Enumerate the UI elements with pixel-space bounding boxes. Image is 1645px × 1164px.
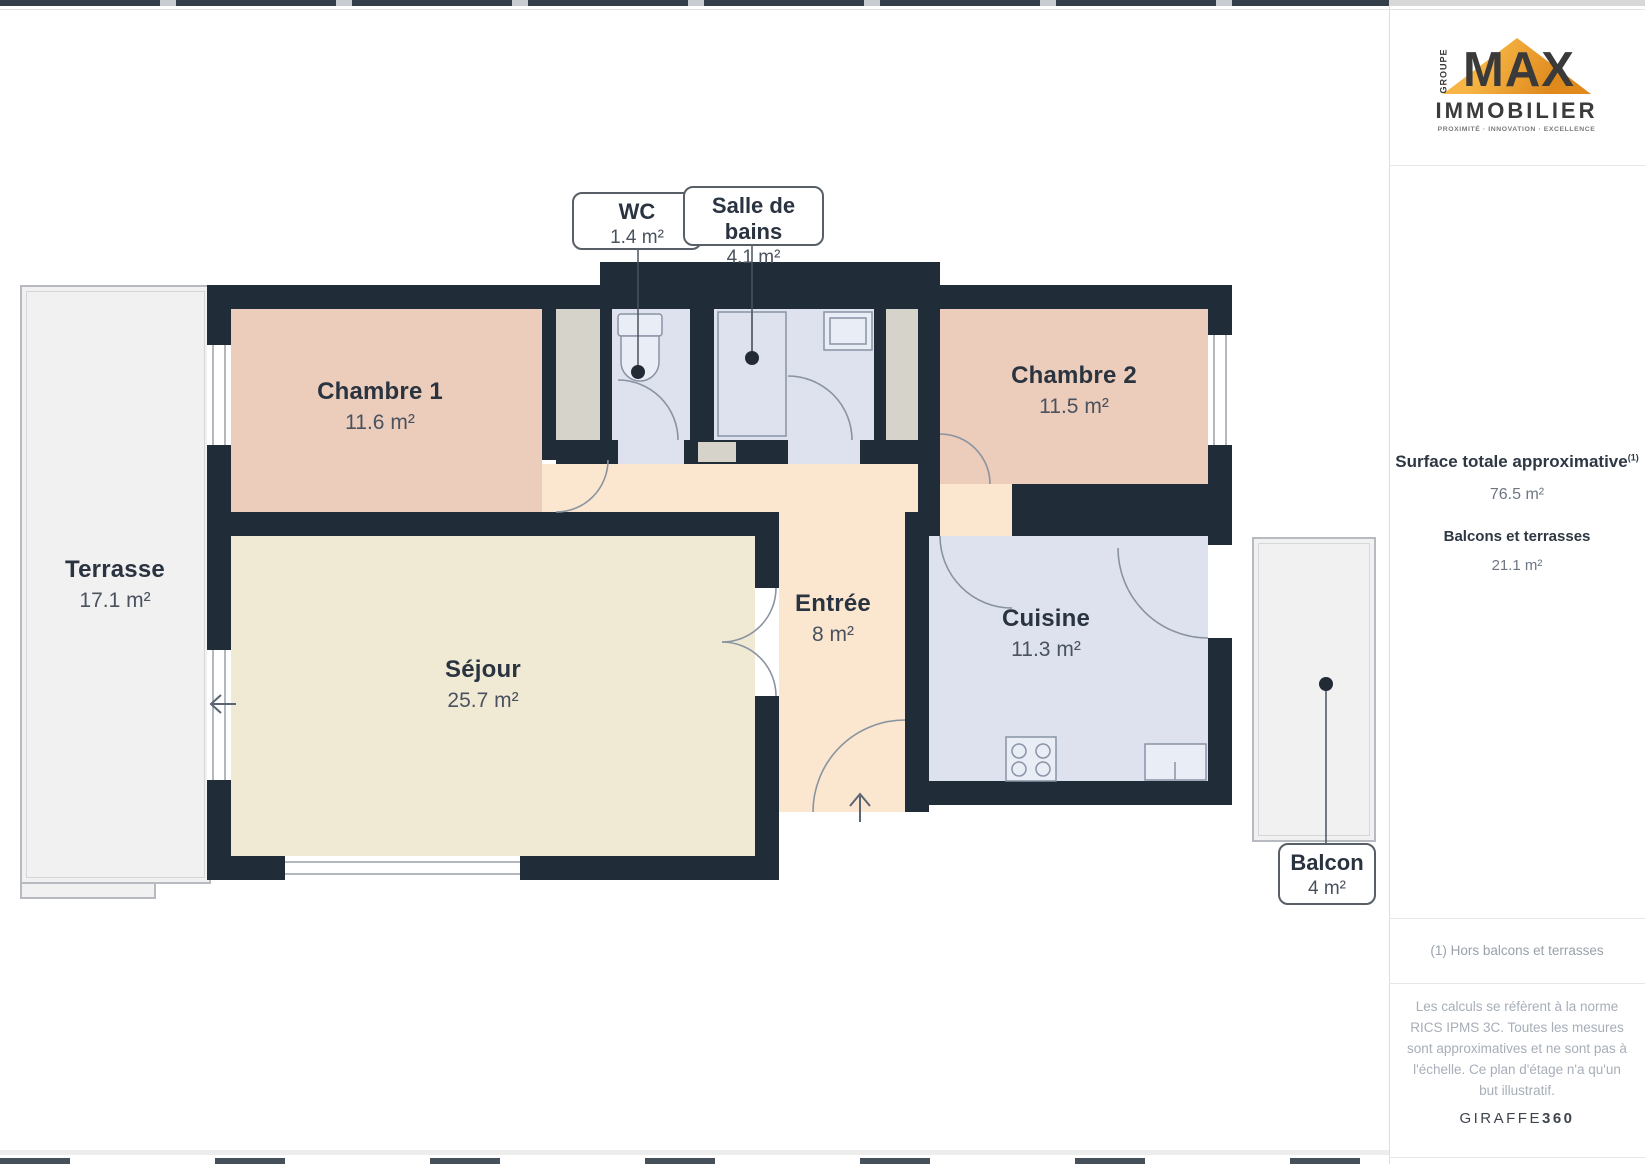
footnote-text: (1) Hors balcons et terrasses	[1389, 943, 1645, 958]
room-area: 11.5 m²	[1011, 395, 1137, 419]
sidebar-divider-logo	[1389, 165, 1645, 166]
door-bathroom	[788, 376, 852, 440]
logo-tagline-text: PROXIMITÉ · INNOVATION · EXCELLENCE	[1429, 126, 1604, 133]
callout-balcony: Balcon 4 m²	[1278, 843, 1376, 905]
floor-plan-page: Chambre 1 11.6 m² Chambre 2 11.5 m² Séjo…	[0, 0, 1645, 1164]
surface-note-marker: (1)	[1628, 452, 1639, 462]
page-bottom-edge	[0, 1158, 1389, 1164]
dot-bathroom	[745, 351, 759, 365]
label-bedroom2: Chambre 2 11.5 m²	[1011, 362, 1137, 419]
callout-area: 4.1 m²	[693, 247, 814, 269]
washbasin-fixture	[824, 312, 872, 350]
door-living-double-top	[722, 588, 776, 642]
surface-total-label: Surface totale approximative	[1395, 452, 1627, 471]
callout-name: Balcon	[1288, 850, 1366, 876]
plan-symbols-overlay	[0, 0, 1645, 1164]
balconies-title: Balcons et terrasses	[1389, 528, 1645, 545]
dot-balcony	[1319, 677, 1333, 691]
sidebar-divider-bottom	[1389, 1157, 1645, 1158]
room-name: Entrée	[795, 590, 871, 618]
sidebar-divider-footnote-top	[1389, 918, 1645, 919]
label-bedroom1: Chambre 1 11.6 m²	[317, 378, 443, 435]
door-living-double-bottom	[722, 642, 776, 696]
window-bedroom2-right	[1208, 335, 1232, 445]
disclaimer-text: Les calculs se réfèrent à la norme RICS …	[1389, 997, 1645, 1102]
callout-name: WC	[582, 199, 692, 225]
door-bedroom1	[556, 460, 608, 512]
room-area: 11.3 m²	[1002, 638, 1090, 662]
giraffe-brand-bold: 360	[1542, 1110, 1575, 1127]
room-name: Chambre 1	[317, 378, 443, 406]
callout-area: 4 m²	[1288, 878, 1366, 900]
room-area: 11.6 m²	[317, 411, 443, 435]
callout-area: 1.4 m²	[582, 227, 692, 249]
room-name: Séjour	[445, 656, 521, 684]
surface-total-value: 76.5 m²	[1389, 486, 1645, 504]
label-terrace: Terrasse 17.1 m²	[65, 556, 165, 613]
door-bedroom2	[940, 434, 990, 484]
window-living-bottom	[285, 856, 520, 880]
balconies-value: 21.1 m²	[1389, 557, 1645, 574]
room-area: 17.1 m²	[65, 589, 165, 613]
giraffe-brand-light: GIRAFFE	[1459, 1110, 1542, 1127]
giraffe360-brand: GIRAFFE360	[1389, 1110, 1645, 1127]
page-top-edge-right	[1389, 0, 1645, 6]
stove-fixture	[1006, 737, 1056, 781]
callout-name: Salle de bains	[693, 193, 814, 245]
surface-summary: Surface totale approximative(1) 76.5 m² …	[1389, 452, 1645, 574]
door-arcs	[556, 376, 1208, 812]
label-kitchen: Cuisine 11.3 m²	[1002, 605, 1090, 662]
logo-max-text: MAX	[1445, 46, 1593, 95]
label-living-room: Séjour 25.7 m²	[445, 656, 521, 713]
page-top-edge	[0, 0, 1389, 6]
page-bottom-band	[0, 1150, 1389, 1155]
surface-total-title: Surface totale approximative(1)	[1389, 452, 1645, 472]
callout-bathroom: Salle de bains 4.1 m²	[683, 186, 824, 246]
sink-fixture	[1145, 744, 1206, 780]
label-entry: Entrée 8 m²	[795, 590, 871, 647]
sidebar-divider-footnote-bottom	[1389, 983, 1645, 984]
window-terrace-slider	[207, 650, 231, 780]
page-top-line	[0, 9, 1645, 10]
room-area: 25.7 m²	[445, 689, 521, 713]
entrance-arrow-icon	[850, 794, 870, 822]
room-area: 8 m²	[795, 623, 871, 647]
room-name: Chambre 2	[1011, 362, 1137, 390]
logo-immobilier-text: IMMOBILIER	[1429, 98, 1604, 124]
door-kitchen	[940, 536, 1012, 608]
door-balcony	[1118, 548, 1208, 638]
dot-wc	[631, 365, 645, 379]
door-wc	[618, 380, 678, 440]
max-immobilier-logo: GROUPE MAX IMMOBILIER PROXIMITÉ · INNOVA…	[1429, 36, 1604, 140]
room-name: Cuisine	[1002, 605, 1090, 633]
window-bedroom1-left	[207, 345, 231, 445]
sidebar-divider-vertical	[1389, 0, 1390, 1164]
room-name: Terrasse	[65, 556, 165, 584]
